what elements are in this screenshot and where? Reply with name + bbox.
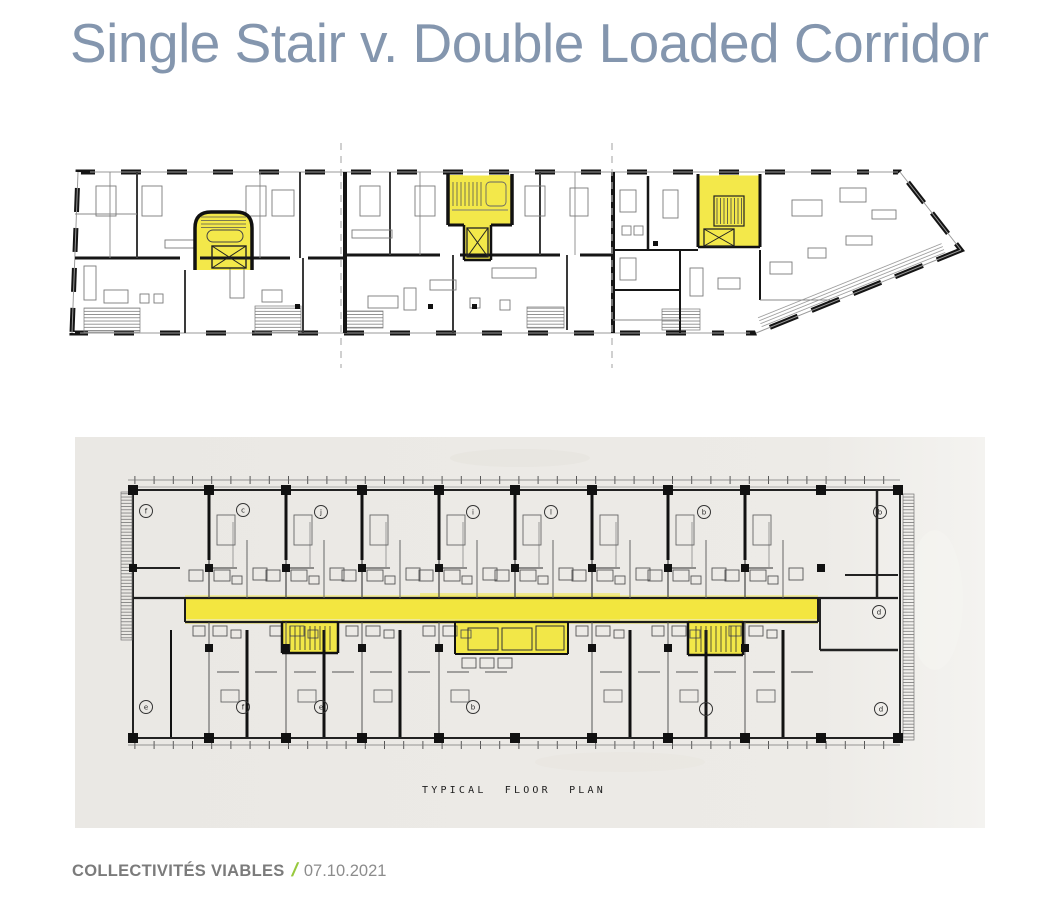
footer-date: 07.10.2021: [304, 862, 387, 881]
unit-label: c: [241, 507, 245, 515]
unit-label: e: [144, 704, 148, 712]
interior-walls: [75, 172, 760, 333]
elevator-lobby-highlight: [455, 620, 568, 654]
unit-label: j: [319, 509, 322, 517]
double-loaded-corridor-plan: f c j i l b b e f e b i d d TYPICAL FLOO…: [75, 437, 985, 828]
unit-label: b: [702, 509, 707, 517]
plan-caption: TYPICAL FLOOR PLAN: [422, 785, 606, 796]
floor-plans-canvas: f c j i l b b e f e b i d d TYPICAL FLOO…: [0, 0, 1044, 904]
bottom-facade-windows: [80, 330, 750, 337]
unit-label: b: [878, 509, 883, 517]
single-stair-plan: [72, 143, 961, 368]
unit-label: e: [319, 704, 323, 712]
stair-left-detail: [282, 622, 338, 653]
stair-core-center-highlight: [448, 175, 512, 260]
footer-brand: COLLECTIVITÉS VIABLES: [72, 862, 285, 881]
stair-core-right-highlight: [698, 175, 760, 247]
unit-label: d: [877, 609, 881, 617]
unit-label: b: [471, 704, 476, 712]
unit-label: d: [879, 706, 883, 714]
slide-footer: COLLECTIVITÉS VIABLES / 07.10.2021: [72, 860, 386, 882]
slide: Single Stair v. Double Loaded Corridor: [0, 0, 1044, 904]
footer-separator: /: [289, 860, 300, 882]
unit-label: i: [472, 509, 474, 517]
unit-label: l: [550, 509, 552, 517]
unit-label: i: [705, 706, 707, 714]
right-balcony-strip: [903, 494, 914, 740]
